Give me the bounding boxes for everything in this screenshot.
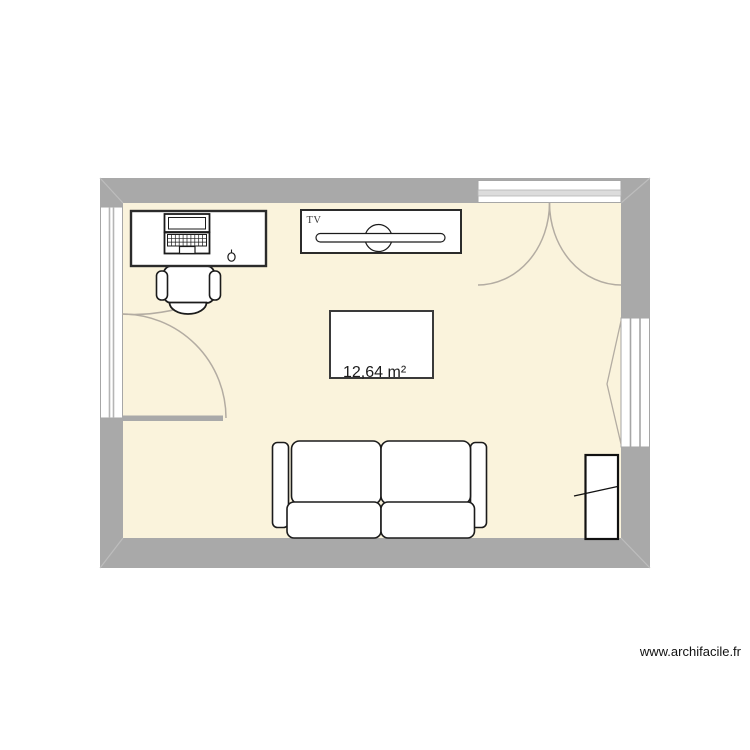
floor-plan-drawing: TV 12,64 m² www.archifacile.fr: [0, 0, 750, 750]
laptop-icon: [165, 214, 210, 254]
radiator-body: [586, 455, 619, 539]
tv-cabinet[interactable]: TV: [301, 210, 461, 253]
two-seat-sofa[interactable]: [273, 441, 487, 538]
sofa-armrest-left: [273, 443, 289, 528]
laptop-touchpad: [180, 247, 196, 254]
window-left[interactable]: [101, 207, 123, 418]
window-right-frame: [621, 318, 650, 447]
desk[interactable]: [131, 211, 266, 266]
tv-label: TV: [307, 215, 322, 226]
floor-plan-canvas: TV 12,64 m² www.archifacile.fr: [0, 0, 750, 750]
archifacile-watermark: www.archifacile.fr: [639, 644, 742, 659]
door-leaf: [122, 416, 223, 422]
sofa-seat-cushion-right: [381, 502, 475, 538]
window-left-frame: [101, 207, 123, 418]
sofa-backrest-right: [381, 441, 471, 504]
tv-screen-icon: [316, 234, 445, 243]
sofa-backrest-left: [292, 441, 382, 504]
chair-armrest-right: [210, 271, 221, 300]
sofa-seat-cushion-left: [287, 502, 381, 538]
chair-armrest-left: [157, 271, 168, 300]
room-area-label: 12,64 m²: [343, 364, 407, 381]
french-door-glazing: [478, 190, 621, 196]
tv-cabinet-top: [301, 210, 461, 253]
chair-seat: [164, 266, 215, 303]
